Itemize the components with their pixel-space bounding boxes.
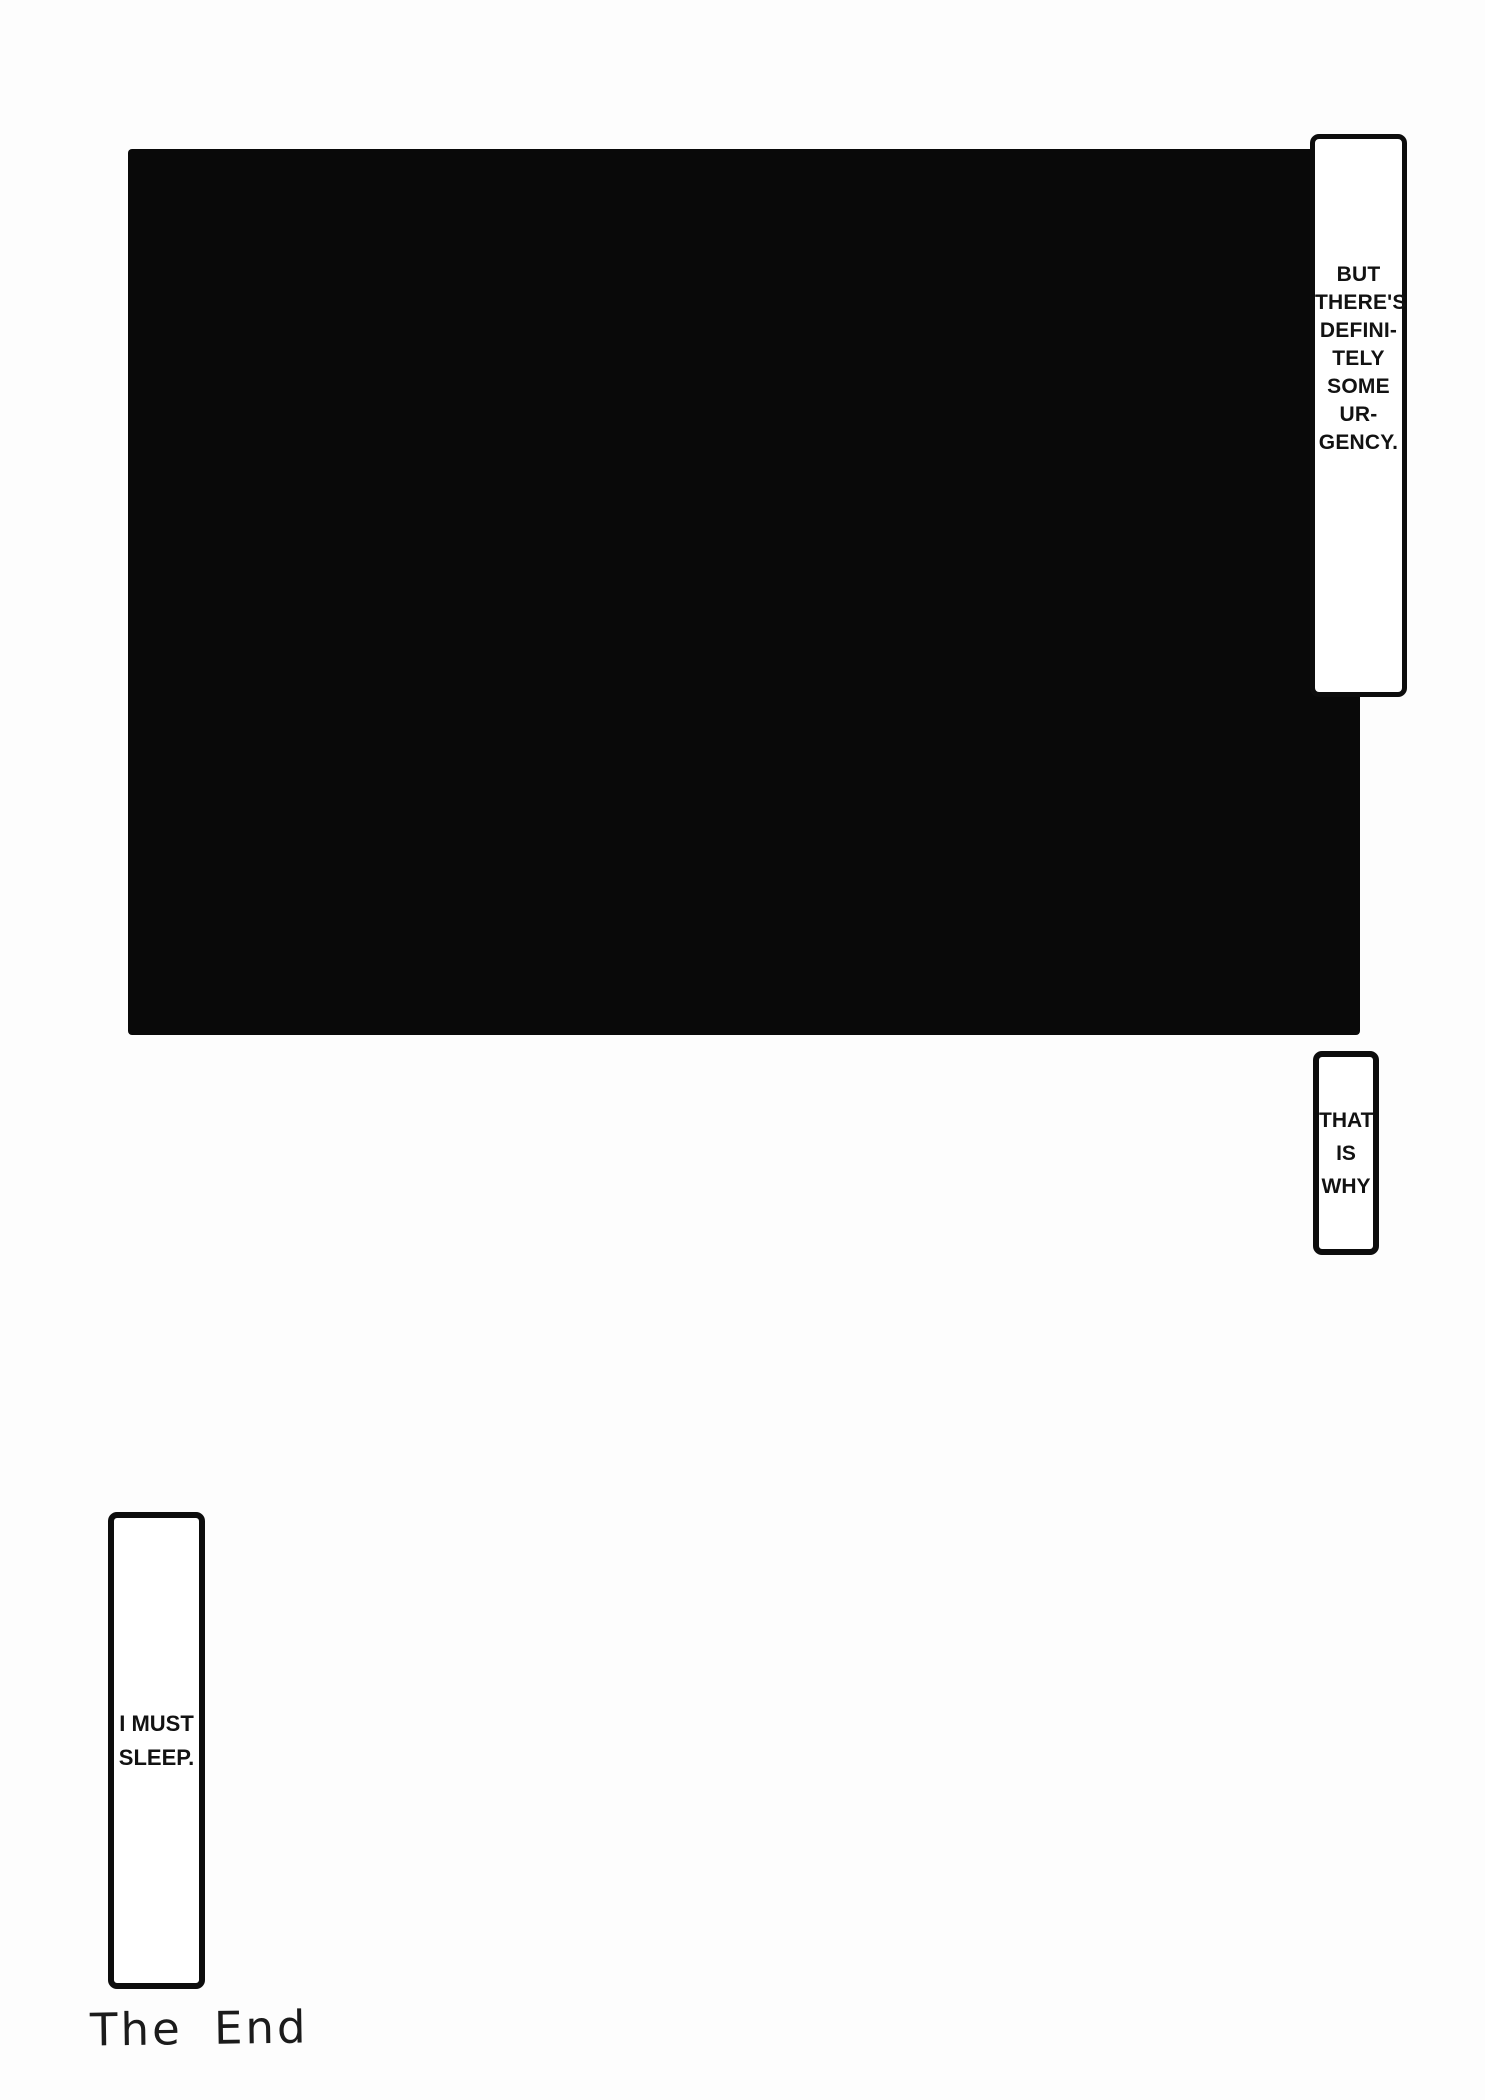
speech-bubble-urgency-text: BUT THERE'S DEFINI- TELY SOME UR- GENCY. (1315, 261, 1402, 457)
bubble-line: I MUST (114, 1707, 199, 1741)
black-panel (128, 149, 1360, 1035)
speech-bubble-that-is-why-text: THAT IS WHY (1319, 1104, 1373, 1203)
bubble-line: SOME (1315, 373, 1402, 401)
bubble-line: GENCY. (1315, 429, 1402, 457)
the-end-label: The End (90, 2000, 309, 2056)
manga-page: BUT THERE'S DEFINI- TELY SOME UR- GENCY.… (0, 0, 1485, 2100)
bubble-line: THAT (1319, 1104, 1373, 1137)
speech-bubble-i-must-sleep: I MUST SLEEP. (108, 1512, 205, 1989)
bubble-line: TELY (1315, 345, 1402, 373)
bubble-line: WHY (1319, 1170, 1373, 1203)
speech-bubble-urgency: BUT THERE'S DEFINI- TELY SOME UR- GENCY. (1310, 134, 1407, 697)
speech-bubble-i-must-sleep-text: I MUST SLEEP. (114, 1707, 199, 1775)
bubble-line: THERE'S (1315, 289, 1402, 317)
speech-bubble-that-is-why: THAT IS WHY (1313, 1051, 1379, 1255)
bubble-line: SLEEP. (114, 1741, 199, 1775)
bubble-line: BUT (1315, 261, 1402, 289)
bubble-line: UR- (1315, 401, 1402, 429)
bubble-line: DEFINI- (1315, 317, 1402, 345)
bubble-line: IS (1319, 1137, 1373, 1170)
